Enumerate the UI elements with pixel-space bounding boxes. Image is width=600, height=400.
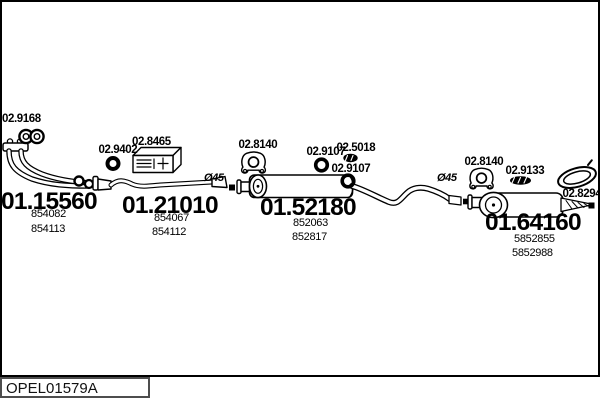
part-number-rear-silencer: 01.64160 — [485, 211, 581, 236]
fitting-number-ring-rear: 02.9107 — [332, 164, 371, 176]
rubber-hanger-icon — [470, 168, 493, 189]
fitting-number-tail-trim: 02.8294 — [563, 189, 600, 201]
ring-gasket-icon — [316, 159, 328, 171]
oem-number: 852817 — [292, 232, 327, 243]
oem-number: 5852855 — [514, 234, 555, 245]
fitting-number-bracket: 02.8465 — [132, 137, 171, 149]
oem-number: 854113 — [31, 224, 65, 235]
ring-gasket-icon — [108, 158, 119, 169]
fitting-number-flat-gasket: 02.9133 — [506, 166, 545, 178]
fitting-number-clamp: 02.5018 — [337, 143, 376, 155]
oem-number: 854082 — [31, 209, 66, 220]
fitting-number-gasket-pair: 02.9168 — [2, 114, 41, 126]
oem-number: 852063 — [293, 218, 328, 229]
mounting-bracket-icon — [133, 148, 181, 173]
oem-number: 854067 — [154, 213, 189, 224]
rubber-hanger-icon — [242, 152, 266, 173]
pipe-diameter-front: Ø45 — [204, 173, 224, 184]
fitting-number-hanger-rear: 02.8140 — [465, 157, 504, 169]
drawing-reference-code: OPEL01579A — [6, 380, 98, 397]
double-gasket-icon — [19, 130, 43, 143]
drawing-reference-box: OPEL01579A — [0, 377, 150, 398]
clamp-icon — [343, 154, 357, 162]
intermediate-s-pipe — [352, 186, 469, 205]
oem-number: 854112 — [152, 227, 186, 238]
oem-number: 5852988 — [512, 248, 553, 259]
pipe-diameter-rear: Ø45 — [437, 173, 457, 184]
fitting-number-hanger-front: 02.8140 — [239, 140, 278, 152]
flat-gasket-icon — [510, 176, 531, 184]
exhaust-parts-diagram-page: 02.9168 02.9402 02.8465 02.8140 02.9107 … — [0, 0, 600, 400]
